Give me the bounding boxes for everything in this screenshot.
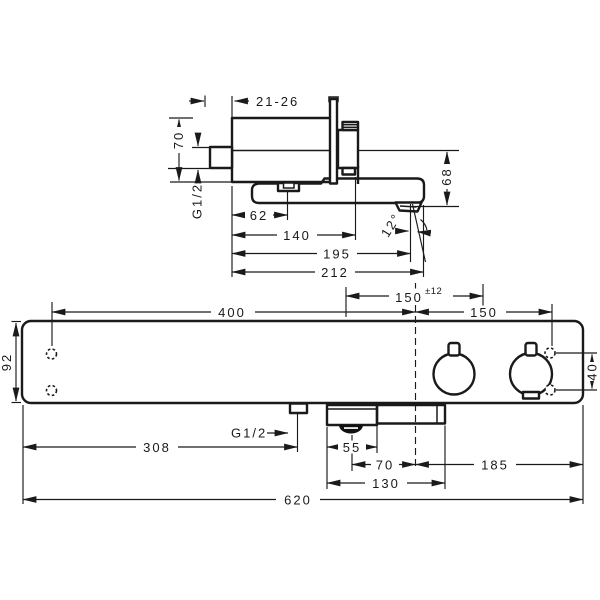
dim-label-55: 55 <box>343 440 361 455</box>
dim-label-308: 308 <box>143 440 171 455</box>
volume-knob-top-tab <box>526 343 537 356</box>
front-body <box>22 321 583 403</box>
dim-label-150-tol-sup: ±12 <box>425 286 442 297</box>
dim-label-62: 62 <box>250 208 268 223</box>
side-wall-connector <box>210 147 232 168</box>
dim-label-212: 212 <box>321 265 349 280</box>
dim-label-620: 620 <box>284 493 312 508</box>
thread-label-side: G1/2 <box>190 183 205 219</box>
front-hose-outlet <box>339 425 363 434</box>
dim-label-70-front: 70 <box>376 458 394 473</box>
dim-label-195: 195 <box>323 247 351 262</box>
volume-knob-bottom-tab <box>523 392 539 399</box>
dim-label-185: 185 <box>481 458 509 473</box>
screw-hole <box>47 349 57 359</box>
side-knob-top-tab <box>343 122 359 130</box>
side-hose-fitting-detail <box>284 183 295 188</box>
dim-label-130: 130 <box>372 476 400 491</box>
side-knob <box>338 130 358 168</box>
temperature-knob-tab <box>449 343 460 356</box>
technical-drawing-page: 21-26 70 G1/2 62 140 195 212 68 12° 400 … <box>0 0 600 600</box>
dim-label-92: 92 <box>0 353 14 371</box>
side-view-dimensions <box>168 96 459 278</box>
dim-label-depth-range: 21-26 <box>256 94 299 109</box>
side-view-product <box>210 97 424 212</box>
screw-hole <box>545 348 555 358</box>
dim-label-height-70: 70 <box>171 131 186 149</box>
front-spout-base <box>377 405 445 424</box>
front-view-product <box>22 321 583 434</box>
front-hose-outlet-slit <box>344 427 358 429</box>
dim-label-150: 150 <box>470 305 498 320</box>
screw-hole <box>545 385 555 395</box>
side-face-plate <box>330 99 337 184</box>
dimension-drawing: 21-26 70 G1/2 62 140 195 212 68 12° 400 … <box>0 0 600 600</box>
front-pipe-stub <box>290 404 307 414</box>
dim-label-spout-angle: 12° <box>378 210 404 240</box>
dim-label-400: 400 <box>218 305 246 320</box>
front-hose-outlet-box <box>327 405 377 425</box>
dim-label-40: 40 <box>585 362 600 380</box>
screw-hole <box>47 386 57 396</box>
temperature-knob <box>434 354 475 395</box>
dim-label-140: 140 <box>283 228 311 243</box>
dim-label-68: 68 <box>439 167 454 185</box>
thread-label-front: G1/2 <box>231 426 267 441</box>
dimension-labels: 21-26 70 G1/2 62 140 195 212 68 12° 400 … <box>0 94 600 508</box>
dim-label-150-tol: 150 <box>395 290 423 305</box>
side-knob-bottom-tab <box>343 168 356 175</box>
